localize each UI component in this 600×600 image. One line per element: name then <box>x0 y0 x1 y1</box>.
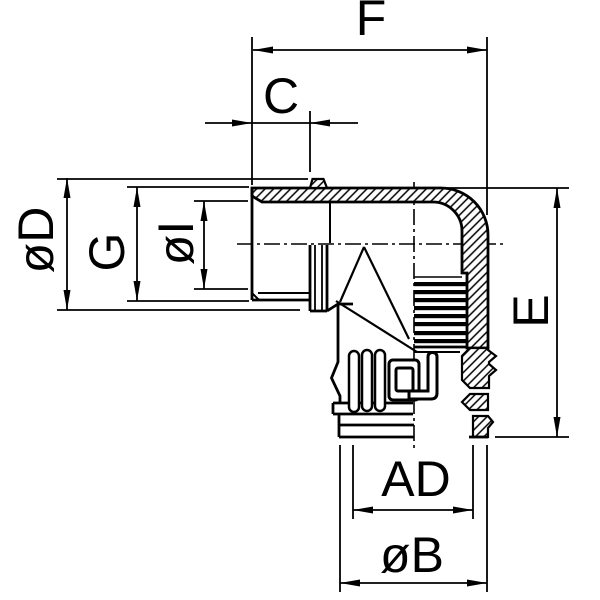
thread-stop-tab <box>310 179 327 188</box>
dim-label-b: øB <box>380 527 444 583</box>
latch-bail <box>389 353 437 401</box>
grip-ribs <box>349 350 385 412</box>
dim-label-f: F <box>356 0 387 46</box>
dim-label-i: øI <box>148 221 204 265</box>
dim-label-g: G <box>79 233 135 272</box>
dim-label-ad: AD <box>381 451 450 507</box>
technical-drawing-canvas: F C øD G øI E AD øB <box>0 0 600 600</box>
dim-label-c: C <box>263 68 299 124</box>
dim-label-d: øD <box>8 207 64 274</box>
dim-label-e: E <box>503 294 559 327</box>
elbow-fitting-drawing: F C øD G øI E AD øB <box>0 0 600 600</box>
